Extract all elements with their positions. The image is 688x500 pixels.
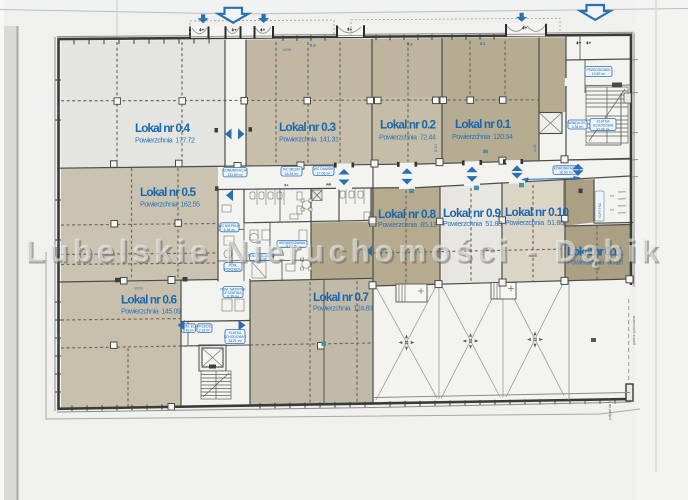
svg-text:Lokal nr 0.7: Lokal nr 0.7: [313, 290, 369, 304]
svg-text:131.80 m²: 131.80 m²: [227, 173, 243, 177]
svg-text:ǂ+: ǂ+: [260, 27, 266, 32]
svg-text:Powierzchnia 72.44: Powierzchnia 72.44: [379, 133, 436, 142]
svg-text:ǂ+: ǂ+: [522, 26, 528, 31]
svg-text:granica opracowania: granica opracowania: [632, 315, 636, 345]
svg-text:wk: wk: [325, 181, 332, 186]
svg-text:Lokal nr 0.9: Lokal nr 0.9: [443, 206, 501, 220]
svg-text:Powierzchnia 120.54: Powierzchnia 120.54: [452, 132, 513, 141]
svg-text:0.3: 0.3: [310, 43, 316, 48]
svg-text:1003: 1003: [134, 286, 144, 291]
svg-text:ǂ+: ǂ+: [347, 27, 353, 32]
svg-text:10.80 m²: 10.80 m²: [592, 72, 606, 76]
svg-text:0.2: 0.2: [407, 42, 413, 47]
svg-text:28.21 m²: 28.21 m²: [228, 339, 242, 343]
svg-text:Powierzchnia 177.72: Powierzchnia 177.72: [135, 136, 195, 145]
svg-text:17.06 m²: 17.06 m²: [317, 171, 331, 175]
svg-text:PRZEDSIONEK: PRZEDSIONEK: [586, 68, 611, 72]
svg-text:Lokal nr 0.2: Lokal nr 0.2: [380, 118, 436, 132]
svg-text:4.34 m²: 4.34 m²: [572, 125, 584, 129]
svg-text:1006: 1006: [282, 47, 292, 52]
svg-text:podjazd dla NP: podjazd dla NP: [608, 398, 612, 420]
svg-text:Lokal nr 0.8: Lokal nr 0.8: [378, 207, 436, 221]
svg-text:Powierzchnia 124.83: Powierzchnia 124.83: [313, 304, 373, 313]
svg-text:ǂ+: ǂ+: [576, 41, 582, 46]
svg-text:Powierzchnia 141.31: Powierzchnia 141.31: [279, 135, 339, 144]
svg-text:2.18 m²: 2.18 m²: [199, 329, 211, 333]
svg-text:11.20: 11.20: [56, 335, 61, 345]
svg-text:18.26 m²: 18.26 m²: [285, 172, 299, 176]
svg-text:Lokal nr 0.5: Lokal nr 0.5: [140, 185, 196, 199]
svg-text:Powierzchnia 162.55: Powierzchnia 162.55: [140, 200, 200, 209]
svg-text:ǂ+: ǂ+: [586, 40, 592, 45]
svg-text:ǂ+: ǂ+: [232, 27, 238, 32]
svg-text:6.34 m²: 6.34 m²: [224, 228, 236, 232]
svg-text:Powierzchnia 145.09: Powierzchnia 145.09: [121, 307, 181, 316]
svg-text:Lokal nr 0.1: Lokal nr 0.1: [455, 117, 511, 131]
svg-text:3.43 m²: 3.43 m²: [183, 329, 195, 333]
svg-text:KURTYNA: KURTYNA: [598, 202, 602, 218]
svg-text:ǂ+: ǂ+: [199, 28, 205, 33]
svg-text:Powierzchnia 51.88: Powierzchnia 51.88: [505, 218, 564, 227]
svg-text:11.58: 11.58: [56, 105, 61, 115]
svg-text:16.50 m²: 16.50 m²: [559, 171, 573, 175]
svg-text:Lokal nr 0.6: Lokal nr 0.6: [121, 293, 177, 307]
svg-text:9.39 m²: 9.39 m²: [227, 294, 239, 298]
svg-text:ǂ+: ǂ+: [284, 183, 289, 188]
svg-text:32.86 m²: 32.86 m²: [596, 127, 610, 131]
svg-text:8.10: 8.10: [433, 143, 438, 152]
svg-text:0.1: 0.1: [480, 41, 486, 46]
svg-text:Powierzchnia 51.88: Powierzchnia 51.88: [443, 219, 502, 228]
svg-text:Lubelskie Nieruchomości - Dąbi: Lubelskie Nieruchomości - Dąbik: [25, 233, 658, 269]
svg-text:Lokal nr 0.10: Lokal nr 0.10: [505, 205, 569, 219]
svg-text:Lokal nr 0.4: Lokal nr 0.4: [135, 121, 190, 135]
svg-text:4.05: 4.05: [532, 143, 537, 152]
svg-text:Lokal nr 0.3: Lokal nr 0.3: [279, 120, 336, 134]
svg-text:Powierzchnia 85.13: Powierzchnia 85.13: [378, 220, 437, 229]
